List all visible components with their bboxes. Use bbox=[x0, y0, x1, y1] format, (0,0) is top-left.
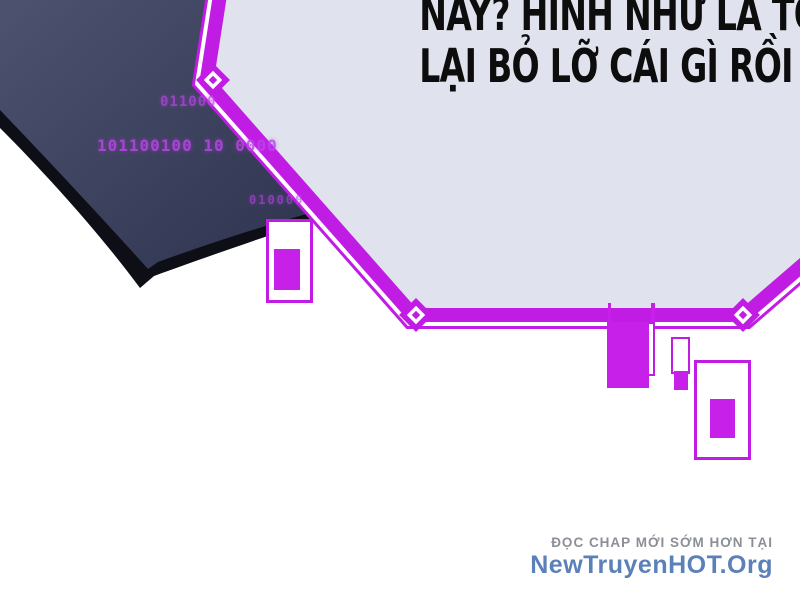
hud-block-right bbox=[710, 399, 735, 438]
hud-block-center bbox=[607, 322, 649, 388]
dialogue-line-1: NÀY? HÌNH NHƯ LÀ TÔI bbox=[419, 0, 744, 40]
binary-overlay-row2: 101100100 10 0000 bbox=[97, 136, 278, 155]
footer-tagline: ĐỌC CHAP MỚI SỚM HƠN TẠI bbox=[530, 535, 773, 550]
dialogue-text: NÀY? HÌNH NHƯ LÀ TÔI LẠI BỎ LỠ CÁI GÌ RỒ… bbox=[419, 0, 744, 92]
footer-site-name: NewTruyenHOT.Org bbox=[530, 551, 773, 580]
hud-frame-small bbox=[671, 337, 690, 374]
binary-overlay-row1: 011000 bbox=[160, 94, 217, 110]
comic-page: 011000 101100100 10 0000 010000 NÀY? HÌN… bbox=[0, 0, 800, 600]
hud-block-left bbox=[274, 249, 300, 290]
hud-block-small bbox=[674, 371, 688, 390]
binary-overlay-row3: 010000 bbox=[249, 193, 304, 207]
footer-watermark: ĐỌC CHAP MỚI SỚM HƠN TẠI NewTruyenHOT.Or… bbox=[530, 535, 773, 580]
dialogue-line-2: LẠI BỎ LỠ CÁI GÌ RỒI bbox=[419, 40, 744, 92]
